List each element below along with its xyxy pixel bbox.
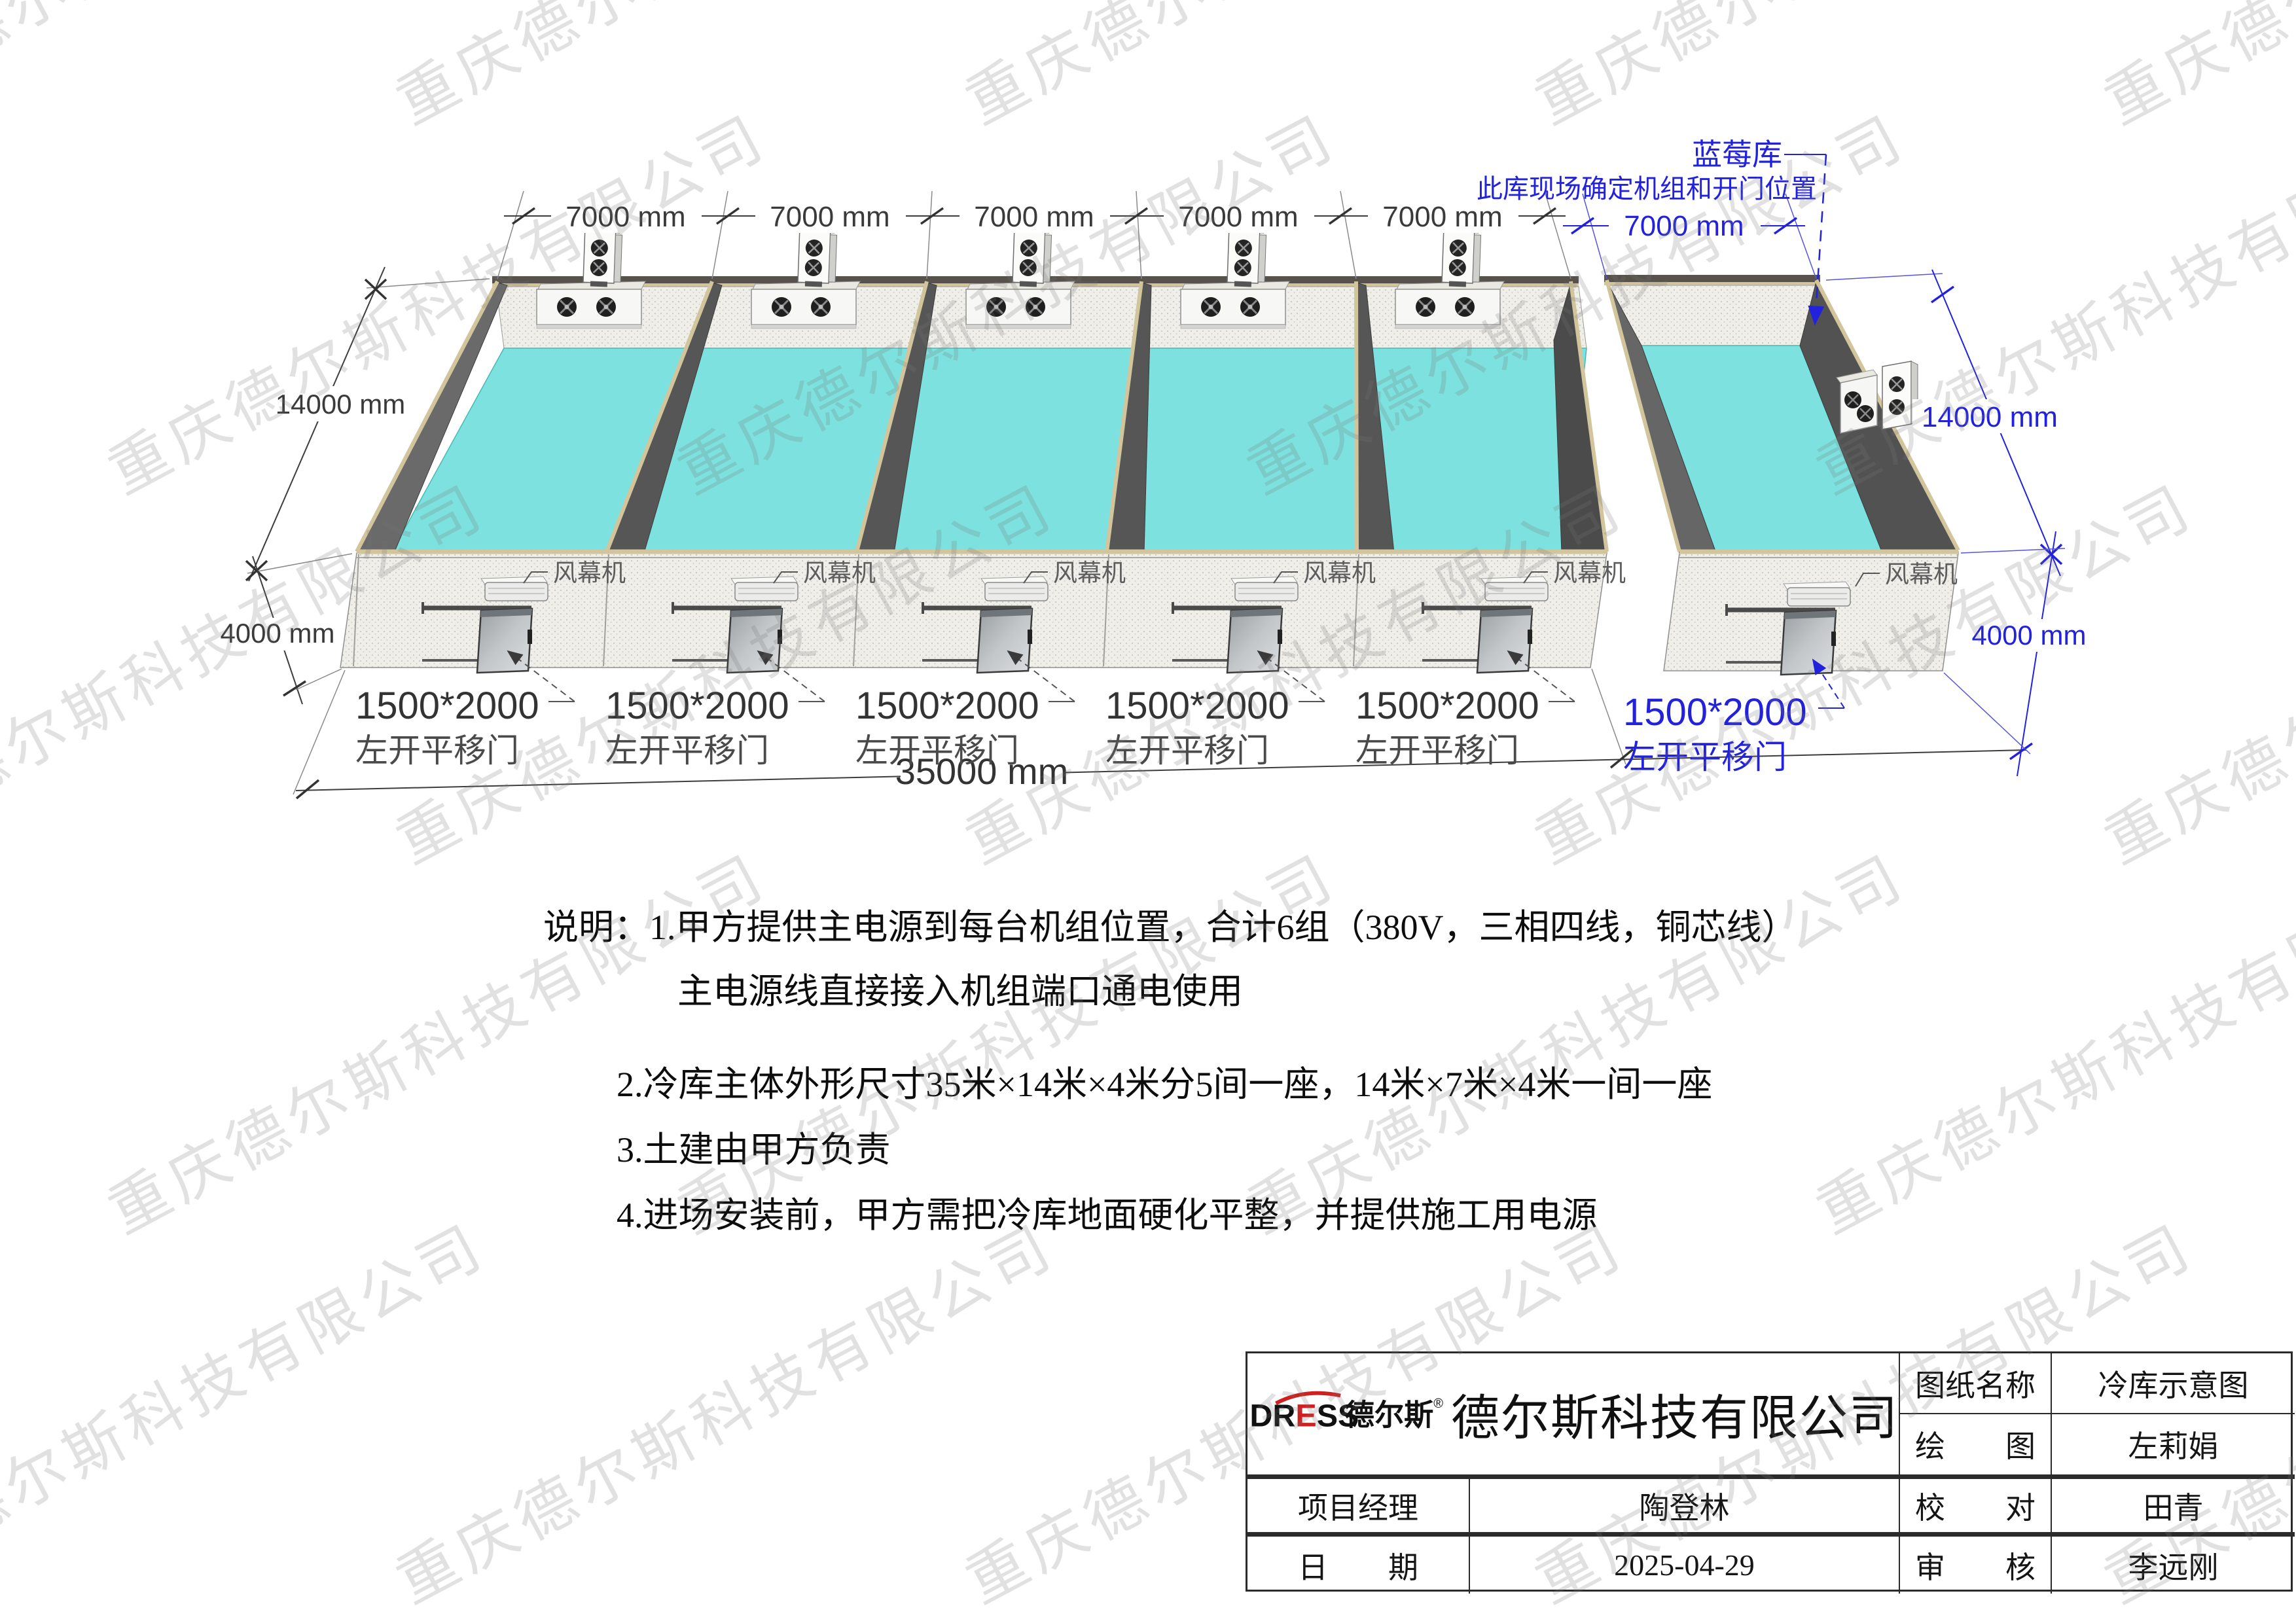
blueberry-door-type-label: 左开平移门 <box>1623 739 1787 776</box>
checker-label: 校 对 <box>1900 1476 2052 1533</box>
checker-value: 田青 <box>2052 1476 2295 1533</box>
blueberry-depth-dim: 14000 mm <box>1922 401 2058 433</box>
blueberry-room <box>1604 275 1958 675</box>
svg-text:德尔斯: 德尔斯 <box>1345 1399 1433 1431</box>
project-manager-value: 陶登林 <box>1470 1476 1900 1533</box>
svg-text:DRESS: DRESS <box>1249 1398 1359 1433</box>
draftsman-label: 绘 图 <box>1900 1414 2052 1476</box>
door-type-label-3: 左开平移门 <box>855 732 1019 769</box>
blueberry-door-label: 1500*2000 左开平移门 <box>1623 660 1844 776</box>
blueberry-condensing-unit <box>1882 361 1911 429</box>
project-manager-label: 项目经理 <box>1247 1476 1470 1533</box>
blueberry-note: 此库现场确定机组和开门位置 <box>1477 174 1817 204</box>
title-block: DRESS 德尔斯 ® 德尔斯科技有限公司 图纸名称 冷库示意图 绘 图 左莉娟… <box>1246 1351 2293 1592</box>
door-type-label-2: 左开平移门 <box>605 732 769 769</box>
blueberry-back-wall <box>1608 285 1818 346</box>
company-logo-cell: DRESS 德尔斯 ® 德尔斯科技有限公司 <box>1247 1353 1900 1476</box>
door-size-label-2: 1500*2000 <box>605 685 789 727</box>
air-curtain-label-2: 风幕机 <box>803 560 876 587</box>
air-curtain-label-1: 风幕机 <box>553 560 626 587</box>
bay-width-dim-5: 7000 mm <box>1382 201 1502 233</box>
evaporator-unit-5 <box>1395 281 1504 329</box>
drawing-name-value: 冷库示意图 <box>2052 1353 2295 1414</box>
door-size-label-4: 1500*2000 <box>1105 685 1289 727</box>
blueberry-height-dim: 4000 mm <box>1971 620 2086 651</box>
bay-width-dim-2: 7000 mm <box>770 201 889 233</box>
condensing-unit-3 <box>1011 226 1052 287</box>
height-dim: 4000 mm <box>220 618 334 649</box>
evaporator-unit-4 <box>1181 281 1289 329</box>
bay-width-dim-3: 7000 mm <box>974 201 1094 233</box>
condensing-unit-4 <box>1225 226 1266 287</box>
air-curtain-label-4: 风幕机 <box>1303 560 1376 587</box>
air-curtain-5 <box>1481 577 1548 601</box>
blueberry-width-dim: 7000 mm <box>1624 210 1744 242</box>
bay-width-dim-1: 7000 mm <box>565 201 685 233</box>
company-name: 德尔斯科技有限公司 <box>1451 1379 1899 1449</box>
condensing-unit-2 <box>796 226 837 287</box>
air-curtain-1 <box>481 577 548 601</box>
condensing-unit-1 <box>581 226 622 287</box>
door-size-label-5: 1500*2000 <box>1355 685 1539 727</box>
date-value: 2025-04-29 <box>1470 1533 1900 1594</box>
bay-width-dim-4: 7000 mm <box>1178 201 1298 233</box>
door-labels: 1500*2000 左开平移门 1500*2000 左开平移门 1500*200… <box>355 651 1575 769</box>
door-type-label-4: 左开平移门 <box>1105 732 1269 769</box>
condensing-unit-5 <box>1440 226 1481 287</box>
blueberry-door-size-label: 1500*2000 <box>1623 691 1807 734</box>
depth-dim: 14000 mm <box>276 389 405 419</box>
air-curtain-label-5: 风幕机 <box>1553 560 1626 587</box>
blueberry-name-label: 蓝莓库 <box>1692 138 1782 171</box>
cold-room-floor <box>391 348 1587 553</box>
auditor-label: 审 核 <box>1900 1533 2052 1594</box>
drawing-name-label: 图纸名称 <box>1900 1353 2052 1414</box>
door-size-label-1: 1500*2000 <box>355 685 539 727</box>
blueberry-air-curtain-label: 风幕机 <box>1885 562 1958 588</box>
main-building <box>340 226 1607 673</box>
evaporator-unit-3 <box>966 281 1075 329</box>
air-curtain-3 <box>981 577 1048 601</box>
auditor-value: 李远刚 <box>2052 1533 2295 1594</box>
cold-storage-drawing-page: 7000 mm 7000 mm 7000 mm 7000 mm 7000 mm … <box>0 0 2296 1623</box>
air-curtain-4 <box>1231 577 1298 601</box>
dress-logo: DRESS 德尔斯 ® <box>1247 1382 1444 1447</box>
evaporator-unit-1 <box>537 281 645 329</box>
date-label: 日 期 <box>1247 1533 1470 1594</box>
door-type-label-1: 左开平移门 <box>355 732 519 769</box>
draftsman-value: 左莉娟 <box>2052 1414 2295 1476</box>
door-size-label-3: 1500*2000 <box>855 685 1039 727</box>
air-curtain-2 <box>731 577 798 601</box>
blueberry-air-curtain <box>1784 582 1850 606</box>
door-type-label-5: 左开平移门 <box>1355 732 1519 769</box>
evaporator-unit-2 <box>751 281 860 329</box>
svg-text:®: ® <box>1433 1396 1443 1410</box>
air-curtain-label-3: 风幕机 <box>1053 560 1126 587</box>
